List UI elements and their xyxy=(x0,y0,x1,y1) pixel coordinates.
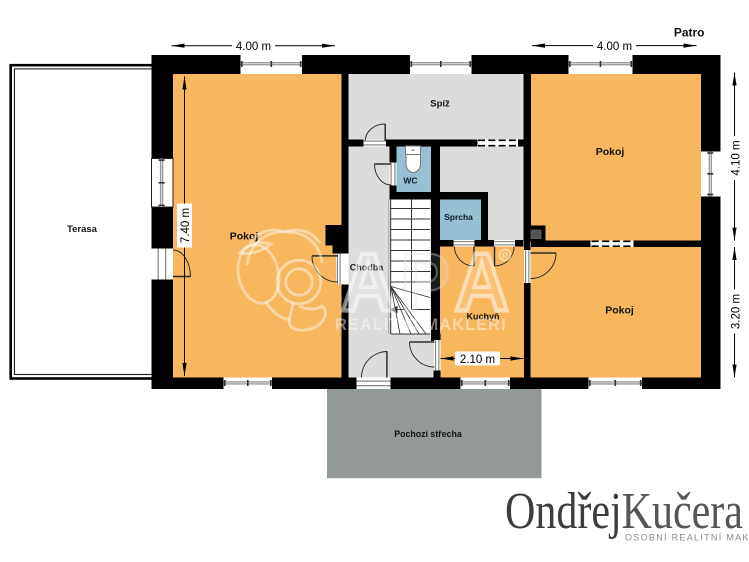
svg-text:R: R xyxy=(502,250,508,260)
svg-text:Spíž: Spíž xyxy=(430,99,450,110)
svg-text:7.40 m: 7.40 m xyxy=(180,208,192,243)
svg-text:Pokoj: Pokoj xyxy=(605,305,634,317)
svg-text:4.00 m: 4.00 m xyxy=(597,41,632,53)
svg-text:4.10 m: 4.10 m xyxy=(731,140,743,175)
svg-text:WC: WC xyxy=(403,176,417,186)
svg-text:Patro: Patro xyxy=(674,26,705,40)
svg-text:3.20 m: 3.20 m xyxy=(731,294,743,329)
svg-text:OSOBNÍ REALITNÍ MAKLÉŘ: OSOBNÍ REALITNÍ MAKLÉŘ xyxy=(625,533,749,543)
svg-text:Terasa: Terasa xyxy=(67,224,98,235)
svg-text:Pochozi střecha: Pochozi střecha xyxy=(394,429,462,439)
svg-text:Sprcha: Sprcha xyxy=(444,212,473,222)
svg-text:2.10 m: 2.10 m xyxy=(460,354,495,366)
svg-text:Pokoj: Pokoj xyxy=(596,146,625,158)
svg-text:REALITNI MAKLERI: REALITNI MAKLERI xyxy=(335,315,507,334)
svg-text:4.00 m: 4.00 m xyxy=(236,41,271,53)
